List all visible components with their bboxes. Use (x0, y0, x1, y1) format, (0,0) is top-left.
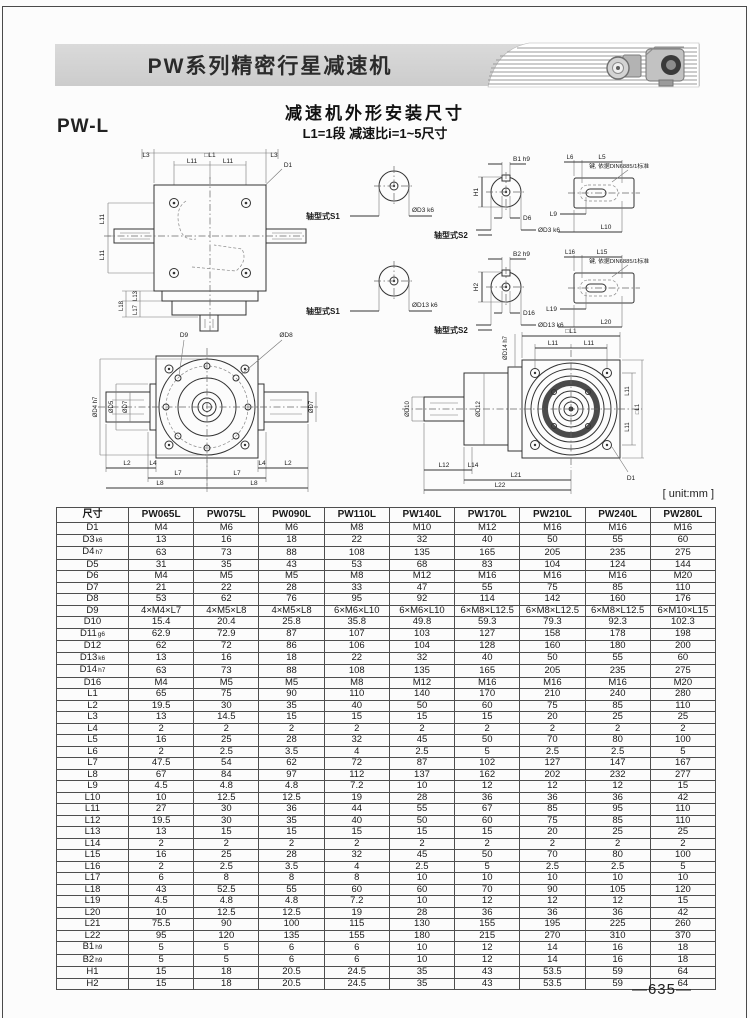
table-cell: 6×M6×L10 (324, 605, 389, 617)
table-cell: M20 (650, 571, 715, 583)
row-label: L4 (57, 723, 129, 735)
shaft-type-caption: 轴型式S1 (306, 211, 340, 221)
dim-label: ØD7 (123, 400, 129, 413)
table-row: L112730364455678595110 (57, 804, 716, 816)
table-cell: 80 (585, 850, 650, 862)
table-cell: 2.5 (520, 861, 585, 873)
row-label: H1 (57, 967, 129, 979)
table-cell: 105 (585, 884, 650, 896)
table-cell: M4 (129, 571, 194, 583)
table-cell: 70 (455, 884, 520, 896)
table-cell: 110 (324, 689, 389, 701)
table-cell: 21 (129, 582, 194, 594)
table-cell: M8 (324, 571, 389, 583)
table-cell: 62 (194, 594, 259, 606)
table-cell: 25 (194, 850, 259, 862)
table-cell: 12 (520, 781, 585, 793)
table-cell: 106 (324, 641, 389, 653)
dim-label: □L1 (204, 152, 216, 159)
table-row: D5313543536883104124144 (57, 559, 716, 571)
table-row: D72122283347557585110 (57, 582, 716, 594)
shaft-type-caption: 轴型式S2 (434, 230, 468, 240)
row-label: L22 (57, 930, 129, 942)
table-row: L101012.512.5192836363642 (57, 792, 716, 804)
table-cell: 198 (650, 628, 715, 641)
table-cell: 75.5 (129, 919, 194, 931)
table-cell: 205 (520, 665, 585, 678)
table-cell: 16 (129, 850, 194, 862)
table-cell: 14 (520, 954, 585, 967)
dim-label: L11 (625, 386, 631, 396)
table-row: L51625283245507080100 (57, 735, 716, 747)
row-label: L19 (57, 896, 129, 908)
table-cell: 202 (520, 769, 585, 781)
dim-label: L15 (597, 249, 608, 256)
table-cell: 12 (520, 896, 585, 908)
table-cell: 205 (520, 547, 585, 560)
table-cell: 4 (324, 861, 389, 873)
row-label: D13k6 (57, 652, 129, 665)
table-cell: 235 (585, 547, 650, 560)
table-cell: 4×M5×L8 (194, 605, 259, 617)
dim-label: L18 (119, 300, 125, 311)
table-cell: 127 (455, 628, 520, 641)
table-cell: 15 (129, 978, 194, 990)
table-cell: 10 (389, 954, 454, 967)
table-cell: 36 (585, 792, 650, 804)
table-cell: M6 (194, 523, 259, 535)
table-cell: 90 (520, 884, 585, 896)
table-cell: 2 (650, 838, 715, 850)
table-cell: 52.5 (194, 884, 259, 896)
table-cell: 6 (324, 954, 389, 967)
row-label: L5 (57, 735, 129, 747)
table-cell: 6×M8×L12.5 (455, 605, 520, 617)
table-cell: 75 (520, 582, 585, 594)
key-note: 键, 依据DIN6885/1标准 (589, 162, 649, 170)
table-cell: 28 (259, 850, 324, 862)
table-cell: M20 (650, 677, 715, 689)
table-cell: 2 (585, 838, 650, 850)
table-row: L31314.515151515202525 (57, 712, 716, 724)
page-title: PW系列精密行星减速机 (55, 44, 485, 86)
table-cell: 92 (389, 594, 454, 606)
dim-label: D6 (523, 215, 532, 222)
table-cell: 3.5 (259, 861, 324, 873)
table-cell: 4.8 (259, 896, 324, 908)
table-cell: 65 (129, 689, 194, 701)
table-row: L219.530354050607585110 (57, 700, 716, 712)
table-cell: 19.5 (129, 815, 194, 827)
table-cell: 2.5 (194, 746, 259, 758)
table-cell: 170 (455, 689, 520, 701)
table-cell: 4.5 (129, 896, 194, 908)
table-row: D4h7637388108135165205235275 (57, 547, 716, 560)
dim-label: L19 (546, 306, 557, 313)
dim-label: L4 (149, 460, 157, 467)
table-row: D13k6131618223240505560 (57, 652, 716, 665)
table-cell: M12 (389, 677, 454, 689)
col-header: PW075L (194, 508, 259, 523)
dim-label: B1 h9 (513, 156, 530, 163)
dim-label: H1 (473, 187, 480, 196)
table-cell: 63 (129, 665, 194, 678)
table-cell: 16 (585, 942, 650, 955)
table-cell: 7.2 (324, 896, 389, 908)
table-cell: 232 (585, 769, 650, 781)
table-cell: 310 (585, 930, 650, 942)
side-view-drawing: □L1 L11 L11 ØD14 h7 ØD12 ØD10 L11 L11 □L… (394, 322, 646, 498)
table-cell: M16 (520, 571, 585, 583)
table-cell: 18 (259, 652, 324, 665)
table-cell: 108 (324, 665, 389, 678)
table-cell: 3.5 (259, 746, 324, 758)
table-cell: 100 (259, 919, 324, 931)
table-cell: 43 (455, 967, 520, 979)
table-row: D94×M4×L74×M5×L84×M5×L86×M6×L106×M6×L106… (57, 605, 716, 617)
table-cell: 2.5 (389, 861, 454, 873)
row-label: D16 (57, 677, 129, 689)
table-cell: 180 (585, 641, 650, 653)
shaft-s1: 轴型式S1 ØD13 k6 (306, 261, 438, 316)
table-cell: 10 (389, 896, 454, 908)
table-row: L1622.53.542.552.52.55 (57, 861, 716, 873)
table-cell: 88 (259, 665, 324, 678)
table-cell: 12.5 (259, 792, 324, 804)
table-cell: 108 (324, 547, 389, 560)
table-cell: 178 (585, 628, 650, 641)
table-cell: 6 (324, 942, 389, 955)
table-cell: 16 (585, 954, 650, 967)
page-border (2, 6, 747, 7)
table-cell: 165 (455, 547, 520, 560)
table-cell: 5 (129, 942, 194, 955)
dim-label: L2 (123, 460, 131, 467)
row-label: L7 (57, 758, 129, 770)
table-cell: 15 (455, 827, 520, 839)
table-cell: 6 (129, 873, 194, 885)
table-cell: 2 (389, 723, 454, 735)
table-cell: 20.5 (259, 978, 324, 990)
table-cell: 75 (520, 815, 585, 827)
table-cell: 6 (259, 954, 324, 967)
dim-label: H2 (473, 282, 480, 291)
table-row: B2h955661012141618 (57, 954, 716, 967)
table-cell: 68 (389, 559, 454, 571)
table-row: D3k6131618223240505560 (57, 534, 716, 547)
table-cell: 4 (324, 746, 389, 758)
table-cell: 14 (520, 942, 585, 955)
table-cell: 180 (389, 930, 454, 942)
dim-label: D9 (180, 332, 189, 339)
section-title: 减速机外形安装尺寸 (0, 99, 750, 124)
table-cell: 155 (455, 919, 520, 931)
table-row: L1219.530354050607585110 (57, 815, 716, 827)
catalog-page: PW系列精密行星减速机 PW-L 减 (0, 0, 750, 1018)
table-cell: 4×M5×L8 (259, 605, 324, 617)
row-label: L16 (57, 861, 129, 873)
table-cell: 36 (455, 907, 520, 919)
col-header: PW110L (324, 508, 389, 523)
table-cell: 67 (129, 769, 194, 781)
table-cell: 195 (520, 919, 585, 931)
table-cell: 110 (650, 700, 715, 712)
table-cell: 2 (455, 723, 520, 735)
table-cell: 15 (324, 712, 389, 724)
table-cell: 73 (194, 547, 259, 560)
table-cell: 120 (194, 930, 259, 942)
dim-label: ØD12 (476, 401, 482, 417)
table-cell: 49.8 (389, 617, 454, 629)
table-cell: 2 (259, 838, 324, 850)
table-cell: 90 (259, 689, 324, 701)
key-side-view: L16 L15 键, 依据DIN6885/1标准 L19 L20 (546, 249, 649, 327)
table-cell: 75 (194, 689, 259, 701)
table-cell: 2 (129, 838, 194, 850)
table-cell: 16 (194, 534, 259, 547)
table-cell: 62 (259, 758, 324, 770)
table-cell: 20 (520, 827, 585, 839)
shaft-type-caption: 轴型式S1 (306, 306, 340, 316)
row-label: D14h7 (57, 665, 129, 678)
table-cell: 5 (650, 746, 715, 758)
table-cell: 6×M8×L12.5 (585, 605, 650, 617)
table-row: L2295120135155180215270310370 (57, 930, 716, 942)
table-cell: 40 (455, 534, 520, 547)
col-header: PW240L (585, 508, 650, 523)
table-cell: 8 (259, 873, 324, 885)
table-cell: 50 (455, 735, 520, 747)
table-cell: 60 (455, 700, 520, 712)
table-cell: 103 (389, 628, 454, 641)
table-cell: 2 (324, 723, 389, 735)
row-label: D11g6 (57, 628, 129, 641)
dim-label: ØD4 h7 (93, 396, 99, 417)
dim-label: L11 (99, 213, 106, 224)
table-cell: 30 (194, 815, 259, 827)
row-label: L13 (57, 827, 129, 839)
table-cell: M5 (259, 677, 324, 689)
table-cell: 45 (389, 735, 454, 747)
dim-label: L7 (233, 470, 241, 477)
dim-label: □L1 (635, 403, 641, 414)
table-cell: 7.2 (324, 781, 389, 793)
dim-label: L3 (142, 152, 150, 159)
table-cell: 5 (194, 954, 259, 967)
table-cell: M16 (520, 523, 585, 535)
table-cell: 50 (520, 534, 585, 547)
table-cell: 370 (650, 930, 715, 942)
table-cell: 8 (324, 873, 389, 885)
table-cell: 10 (585, 873, 650, 885)
table-cell: 15 (389, 827, 454, 839)
table-cell: 10 (455, 873, 520, 885)
row-label: L21 (57, 919, 129, 931)
table-cell: 158 (520, 628, 585, 641)
table-cell: 22 (324, 652, 389, 665)
table-cell: 67 (455, 804, 520, 816)
row-label: D4h7 (57, 547, 129, 560)
table-cell: 260 (650, 919, 715, 931)
table-cell: 35 (389, 978, 454, 990)
table-cell: 12.5 (194, 792, 259, 804)
table-cell: 4.8 (194, 781, 259, 793)
table-cell: 32 (389, 652, 454, 665)
row-label: L20 (57, 907, 129, 919)
table-cell: 167 (650, 758, 715, 770)
table-cell: M16 (585, 571, 650, 583)
table-cell: 15 (455, 712, 520, 724)
table-cell: 85 (520, 804, 585, 816)
table-cell: 19 (324, 792, 389, 804)
table-row: B1h955661012141618 (57, 942, 716, 955)
table-cell: 18 (650, 954, 715, 967)
table-cell: 40 (324, 700, 389, 712)
table-cell: 6 (259, 942, 324, 955)
table-cell: 15 (389, 712, 454, 724)
table-cell: 120 (650, 884, 715, 896)
dim-label: ØD8 (279, 332, 293, 339)
table-cell: 32 (389, 534, 454, 547)
table-cell: 90 (194, 919, 259, 931)
col-header: PW170L (455, 508, 520, 523)
table-cell: 36 (585, 907, 650, 919)
table-cell: 63 (129, 547, 194, 560)
table-cell: 104 (389, 641, 454, 653)
table-cell: 75 (520, 700, 585, 712)
table-cell: 72 (324, 758, 389, 770)
dim-label: D1 (284, 162, 293, 169)
table-cell: 5 (455, 861, 520, 873)
table-row: L14222222222 (57, 838, 716, 850)
dim-label: ØD14 h7 (503, 335, 509, 360)
table-cell: 59.3 (455, 617, 520, 629)
header-bar: PW系列精密行星减速机 (55, 44, 700, 86)
table-cell: 12 (585, 781, 650, 793)
table-cell: 235 (585, 665, 650, 678)
dim-label: L11 (99, 249, 106, 260)
table-cell: 15 (650, 896, 715, 908)
row-label: L2 (57, 700, 129, 712)
table-cell: 5 (129, 954, 194, 967)
table-cell: 2 (194, 723, 259, 735)
table-cell: 8 (194, 873, 259, 885)
table-cell: 15.4 (129, 617, 194, 629)
dim-label: L12 (439, 462, 450, 469)
table-row: D85362769592114142160176 (57, 594, 716, 606)
table-cell: 5 (194, 942, 259, 955)
table-cell: 160 (520, 641, 585, 653)
table-cell: 20.5 (259, 967, 324, 979)
front-view-drawing: L3 □L1 L3 L11 L11 D1 L11 L11 L18 L13 L17 (96, 149, 311, 333)
table-cell: 19 (324, 907, 389, 919)
table-cell: 25 (650, 712, 715, 724)
table-cell: 53 (324, 559, 389, 571)
table-row: L747.554627287102127147167 (57, 758, 716, 770)
table-row: L2175.590100115130155195225260 (57, 919, 716, 931)
table-cell: 18 (259, 534, 324, 547)
row-label: L11 (57, 804, 129, 816)
table-cell: 55 (585, 652, 650, 665)
table-cell: M16 (585, 523, 650, 535)
table-cell: M12 (389, 571, 454, 583)
table-cell: 53.5 (520, 967, 585, 979)
dim-label: ØD10 (405, 401, 411, 417)
table-cell: 36 (455, 792, 520, 804)
table-row: D1M4M6M6M8M10M12M16M16M16 (57, 523, 716, 535)
table-cell: M16 (455, 677, 520, 689)
table-cell: 2 (324, 838, 389, 850)
dim-label: L8 (250, 480, 258, 487)
dim-label: L8 (156, 480, 164, 487)
shaft-s1: 轴型式S1 ØD3 k6 (306, 166, 434, 221)
table-cell: 2.5 (194, 861, 259, 873)
table-cell: 27 (129, 804, 194, 816)
table-cell: 55 (259, 884, 324, 896)
table-cell: 128 (455, 641, 520, 653)
table-cell: 104 (520, 559, 585, 571)
table-cell: M8 (324, 523, 389, 535)
table-cell: 200 (650, 641, 715, 653)
table-cell: 50 (389, 700, 454, 712)
table-cell: 240 (585, 689, 650, 701)
table-cell: 270 (520, 930, 585, 942)
table-head: 尺寸PW065LPW075LPW090LPW110LPW140LPW170LPW… (57, 508, 716, 523)
table-cell: 13 (129, 827, 194, 839)
table-cell: 135 (389, 547, 454, 560)
dim-label: L21 (511, 472, 522, 479)
table-cell: 85 (585, 582, 650, 594)
col-header: PW210L (520, 508, 585, 523)
table-cell: 2.5 (389, 746, 454, 758)
table-row: L4222222222 (57, 723, 716, 735)
table-cell: 142 (520, 594, 585, 606)
dim-label: ØD3 k6 (538, 227, 560, 234)
page-border (746, 6, 747, 1018)
table-cell: 32 (324, 850, 389, 862)
table-cell: 42 (650, 792, 715, 804)
row-label: D12 (57, 641, 129, 653)
dim-label: ØD7 (309, 400, 315, 413)
dim-label: □L1 (565, 328, 577, 335)
table-cell: 24.5 (324, 967, 389, 979)
table-cell: 275 (650, 665, 715, 678)
table-cell: 10 (520, 873, 585, 885)
table-cell: 62.9 (129, 628, 194, 641)
table-cell: 10 (389, 781, 454, 793)
table-cell: 59 (585, 967, 650, 979)
table-cell: 87 (389, 758, 454, 770)
row-label: L8 (57, 769, 129, 781)
table-cell: 137 (389, 769, 454, 781)
table-cell: 12 (585, 896, 650, 908)
table-cell: 12 (455, 942, 520, 955)
dim-label: L11 (625, 422, 631, 432)
dimension-table: 尺寸PW065LPW075LPW090LPW110LPW140LPW170LPW… (56, 507, 716, 990)
table-cell: 30 (194, 700, 259, 712)
header-row: 尺寸PW065LPW075LPW090LPW110LPW140LPW170LPW… (57, 508, 716, 523)
dim-label: ØD5 (109, 400, 115, 413)
dim-label: L11 (223, 158, 234, 165)
shaft-s2: B1 h9 H1 D6 ØD3 k6 轴型式S2 (434, 156, 560, 240)
table-cell: 35 (259, 815, 324, 827)
table-cell: 135 (259, 930, 324, 942)
table-cell: 79.3 (520, 617, 585, 629)
dim-label: L6 (567, 155, 574, 161)
table-cell: 102.3 (650, 617, 715, 629)
table-cell: 95 (324, 594, 389, 606)
table-cell: 2 (129, 746, 194, 758)
